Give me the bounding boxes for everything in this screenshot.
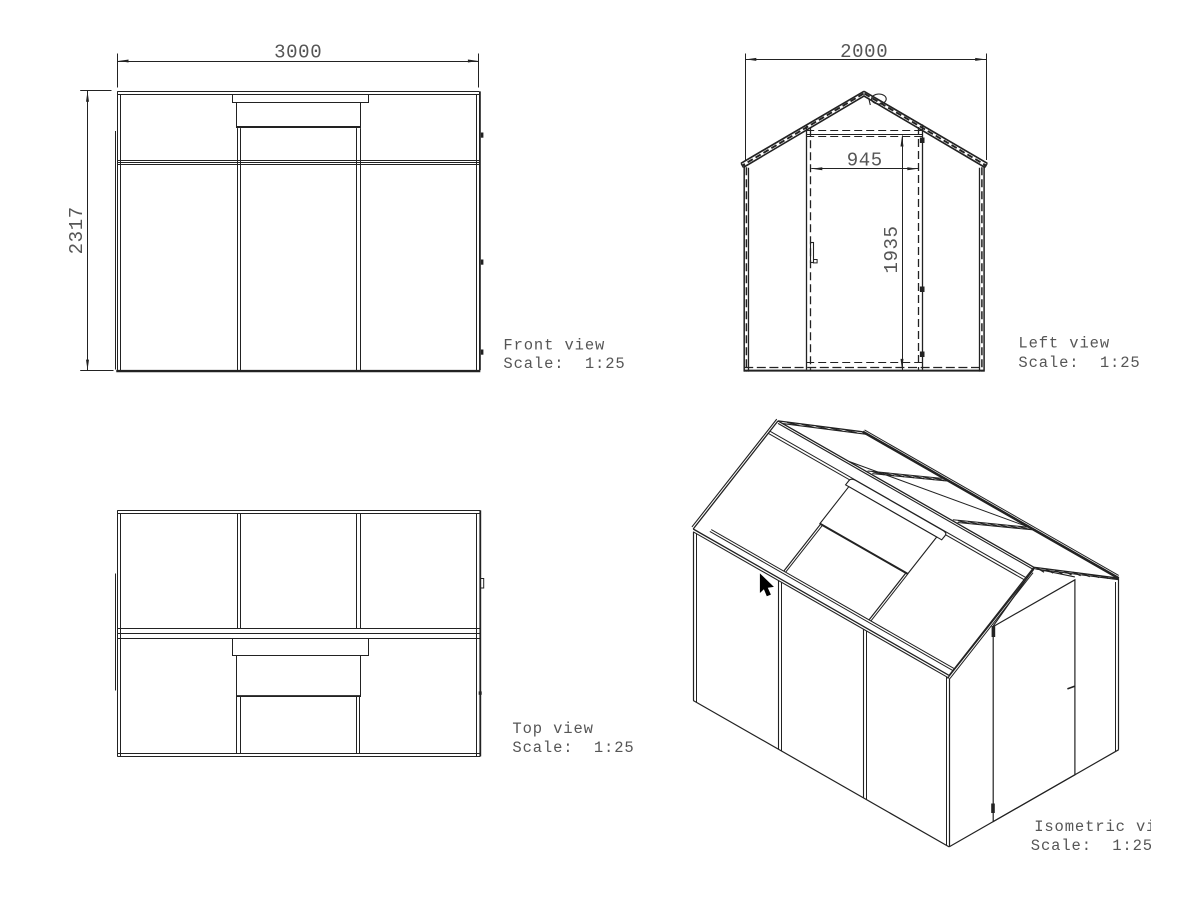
svg-text:Scale: 1:25: Scale: 1:25 bbox=[1031, 837, 1153, 855]
svg-text:Scale: 1:25: Scale: 1:25 bbox=[1018, 354, 1140, 372]
svg-text:1935: 1935 bbox=[881, 225, 903, 273]
svg-text:945: 945 bbox=[847, 149, 883, 171]
svg-text:Left view: Left view bbox=[1018, 335, 1110, 353]
svg-text:2317: 2317 bbox=[66, 206, 88, 254]
svg-text:Scale: 1:25: Scale: 1:25 bbox=[503, 355, 625, 373]
svg-text:Front view: Front view bbox=[503, 336, 605, 354]
svg-text:2000: 2000 bbox=[840, 41, 888, 63]
svg-text:Scale: 1:25: Scale: 1:25 bbox=[512, 739, 634, 757]
svg-text:Top view: Top view bbox=[512, 720, 593, 738]
svg-text:3000: 3000 bbox=[274, 42, 322, 64]
